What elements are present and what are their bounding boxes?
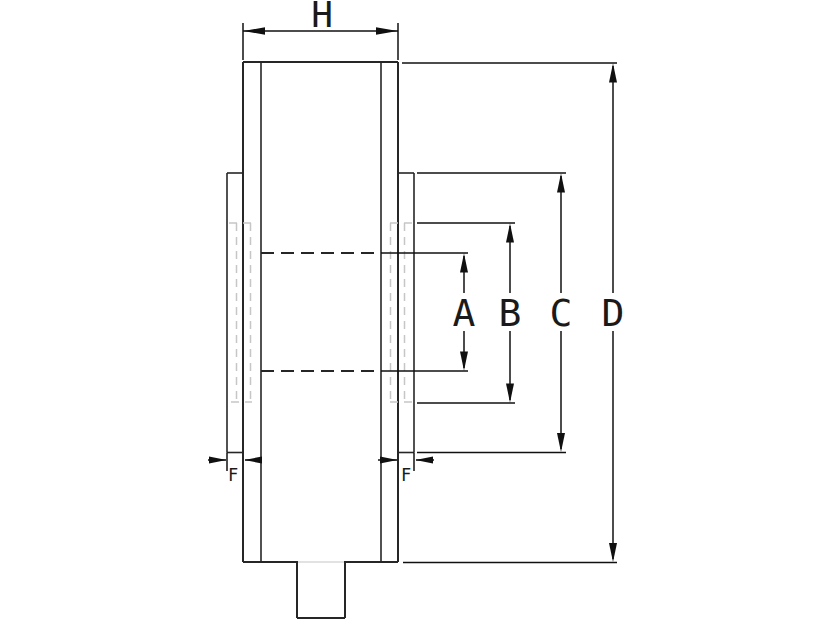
arrow-up-icon: [609, 64, 617, 83]
dimension-c: C: [417, 173, 572, 453]
arrow-right-icon: [209, 456, 227, 463]
dim-label-f-left: F: [228, 465, 238, 485]
arrow-down-icon: [506, 384, 514, 403]
dim-label-c: C: [550, 291, 573, 335]
mounting-flange-right: [398, 173, 414, 453]
technical-drawing-canvas: H A B C D: [0, 0, 830, 624]
arrow-left-icon: [416, 456, 434, 463]
arrow-down-icon: [557, 433, 565, 452]
dimension-f-left: F: [208, 453, 262, 486]
port-centerlines: [261, 253, 381, 371]
dimension-drawing: H A B C D: [0, 0, 830, 624]
dim-label-b: B: [499, 291, 522, 335]
dim-label-h: H: [311, 0, 333, 35]
dim-label-f-right: F: [401, 465, 411, 485]
arrow-up-icon: [460, 254, 468, 273]
dimension-f-right: F: [378, 453, 434, 486]
bottom-spigot: [297, 562, 345, 618]
housing-body: [243, 62, 398, 562]
arrow-left-icon: [244, 27, 266, 35]
hidden-slot-right: [390, 223, 415, 402]
arrow-left-icon: [245, 456, 263, 463]
arrow-up-icon: [506, 224, 514, 243]
dim-label-a: A: [453, 291, 476, 335]
arrow-down-icon: [460, 352, 468, 371]
mounting-flange-left: [227, 173, 243, 453]
dimension-a: A: [381, 253, 476, 371]
arrow-right-icon: [376, 27, 398, 35]
arrow-up-icon: [557, 174, 565, 193]
arrow-down-icon: [609, 543, 617, 562]
arrow-right-icon: [380, 456, 398, 463]
dim-label-d: D: [602, 291, 625, 335]
dimension-h: H: [243, 0, 398, 60]
